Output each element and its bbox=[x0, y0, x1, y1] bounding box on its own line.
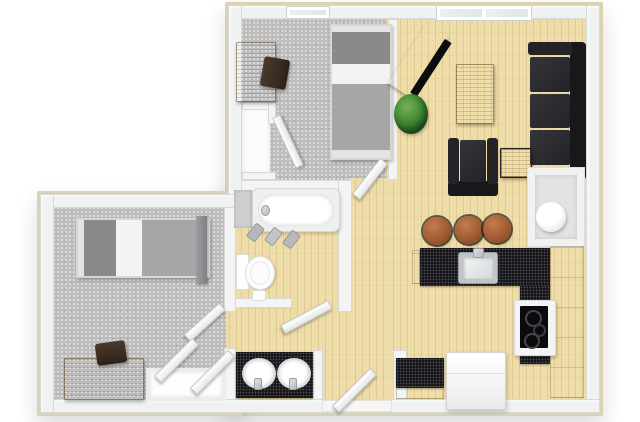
wall-vanity-right bbox=[313, 350, 323, 401]
armchair-armrest bbox=[487, 138, 498, 184]
plant bbox=[394, 94, 428, 134]
wall-outer-right bbox=[586, 5, 600, 413]
bed-blanket-dark bbox=[84, 220, 116, 276]
cooktop-stove bbox=[514, 300, 556, 356]
cooktop-glass bbox=[520, 306, 548, 348]
floor-plan-canvas bbox=[0, 0, 640, 422]
sofa-cushion bbox=[530, 130, 570, 165]
kitchen-counter-bottom bbox=[396, 358, 444, 388]
bed-blanket-dark bbox=[332, 32, 390, 64]
bedroom-top-window bbox=[286, 6, 330, 19]
bathtub-faucet bbox=[261, 205, 270, 216]
kitchen-cabinet-bottom bbox=[396, 386, 444, 399]
bed-blanket bbox=[332, 84, 390, 150]
bed-blanket bbox=[142, 220, 202, 276]
wall-outer-wing-left bbox=[40, 194, 54, 413]
bedroom-left-bed bbox=[76, 218, 210, 278]
vanity-faucet bbox=[289, 378, 297, 390]
wall-closet-bottom bbox=[242, 172, 276, 180]
wall-bathroom-right bbox=[338, 180, 352, 312]
toilet-seat-ring bbox=[250, 261, 270, 285]
sofa bbox=[528, 42, 586, 180]
window-pane bbox=[439, 8, 483, 18]
bedroom-left-desk-chair bbox=[95, 340, 128, 366]
toilet-paper-holder bbox=[252, 290, 266, 301]
bed-sheet bbox=[116, 220, 142, 276]
bed-sheet bbox=[332, 64, 390, 84]
coffee-table bbox=[456, 64, 494, 124]
bar-stool bbox=[423, 217, 451, 245]
sofa-back bbox=[570, 42, 586, 180]
armchair-armrest bbox=[448, 138, 459, 184]
armchair bbox=[448, 138, 498, 196]
bar-stool bbox=[483, 215, 511, 243]
wall-outer-main-left bbox=[228, 5, 242, 205]
refrigerator bbox=[446, 352, 506, 410]
bar-stool bbox=[455, 216, 483, 244]
toilet-bowl bbox=[245, 256, 275, 290]
sofa-cushion bbox=[530, 94, 570, 129]
sink-basin bbox=[463, 257, 493, 279]
bathroom-tile-area bbox=[234, 190, 252, 228]
sofa-cushion bbox=[530, 57, 570, 92]
bedroom-top-bed bbox=[330, 24, 392, 160]
vanity-faucet bbox=[254, 378, 262, 390]
window-pane bbox=[485, 8, 529, 18]
wall-outer-bottom bbox=[40, 399, 600, 413]
fridge-door-line bbox=[447, 373, 505, 374]
sink-faucet bbox=[473, 248, 484, 258]
sofa-armrest bbox=[528, 42, 572, 55]
kitchen-sink bbox=[458, 252, 498, 284]
window-pane bbox=[289, 9, 327, 16]
bed-footboard bbox=[332, 150, 390, 158]
wall-outer-wing-top bbox=[40, 194, 242, 208]
bedroom-top-desk-chair bbox=[260, 56, 291, 90]
kitchen-cabinet-end-panel bbox=[412, 250, 420, 284]
burner bbox=[524, 333, 540, 349]
wardrobe bbox=[196, 216, 207, 284]
wall-outer-top bbox=[228, 5, 600, 19]
living-room-window bbox=[436, 5, 532, 21]
water-heater bbox=[536, 202, 566, 232]
bedroom-top-closet-floor bbox=[242, 108, 270, 174]
armchair-seat bbox=[460, 140, 486, 182]
bathtub bbox=[252, 188, 340, 232]
